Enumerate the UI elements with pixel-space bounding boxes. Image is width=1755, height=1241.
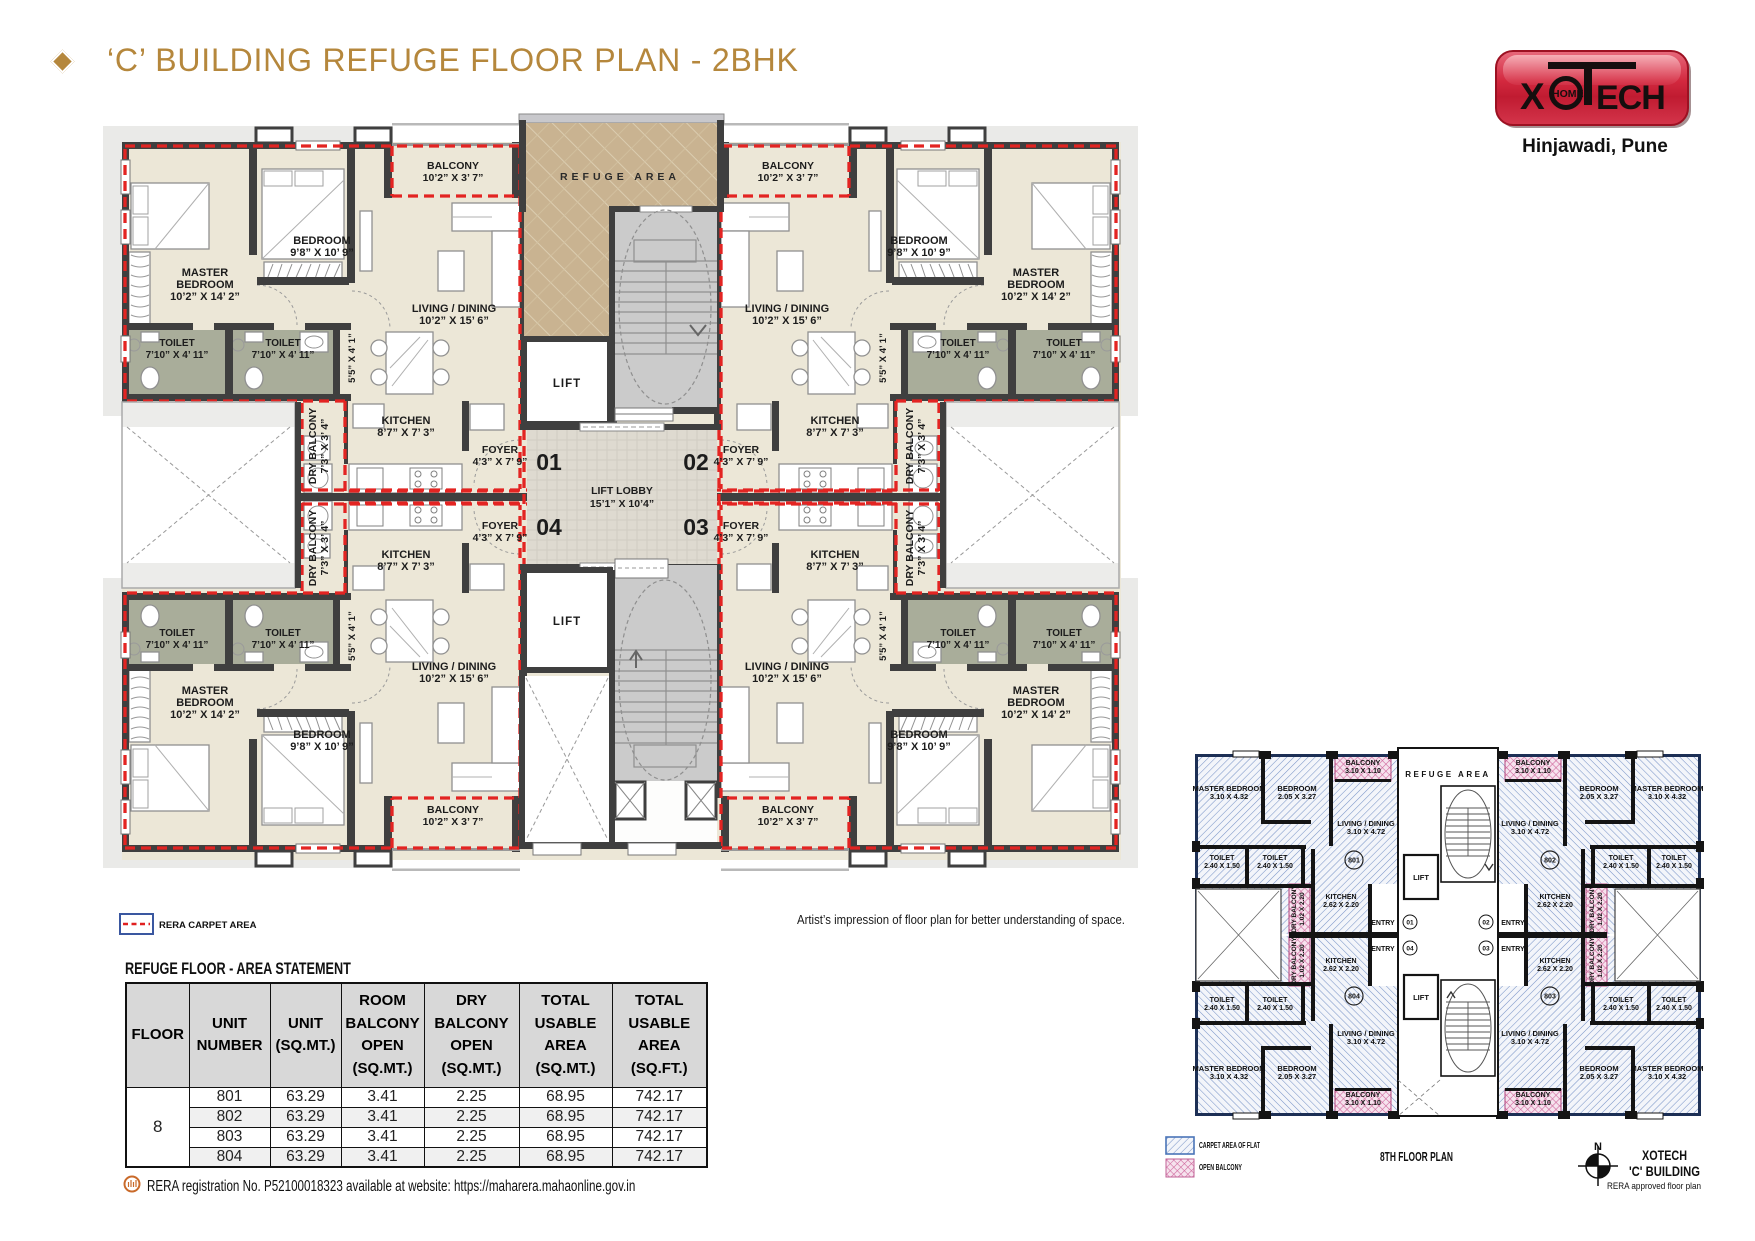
svg-text:ENTRY: ENTRY (1371, 920, 1395, 927)
svg-text:BEDROOM: BEDROOM (293, 235, 350, 247)
svg-text:10’2” X 3’ 7”: 10’2” X 3’ 7” (758, 816, 819, 828)
svg-text:TOILET: TOILET (1046, 628, 1081, 639)
svg-text:BALCONY: BALCONY (1516, 760, 1551, 767)
svg-text:10’2” X 14’ 2”: 10’2” X 14’ 2” (1001, 709, 1071, 721)
svg-text:RERA approved floor plan: RERA approved floor plan (1607, 1181, 1701, 1192)
svg-text:DRY BALCONY: DRY BALCONY (1589, 885, 1596, 933)
svg-text:BEDROOM: BEDROOM (293, 729, 350, 741)
svg-text:FOYER: FOYER (723, 520, 760, 532)
svg-text:LIVING / DINING: LIVING / DINING (745, 303, 829, 315)
svg-text:2.40 X 1.50: 2.40 X 1.50 (1257, 1005, 1293, 1012)
svg-text:02: 02 (1482, 920, 1490, 927)
svg-text:MASTER: MASTER (182, 685, 229, 697)
svg-text:BEDROOM: BEDROOM (1007, 697, 1064, 709)
svg-text:3.10 X 4.32: 3.10 X 4.32 (1648, 1072, 1686, 1081)
svg-text:BALCONY: BALCONY (1346, 760, 1381, 767)
svg-text:TOILET: TOILET (1609, 855, 1634, 862)
svg-text:BALCONY: BALCONY (762, 160, 814, 172)
svg-text:3.10 X 1.10: 3.10 X 1.10 (1515, 768, 1551, 775)
svg-text:2.05 X 3.27: 2.05 X 3.27 (1278, 1072, 1316, 1081)
svg-text:03: 03 (683, 514, 709, 540)
svg-text:MASTER: MASTER (182, 267, 229, 279)
svg-text:15’1” X 10’4”: 15’1” X 10’4” (590, 498, 654, 510)
svg-text:7’3” X 3’ 4”: 7’3” X 3’ 4” (319, 419, 331, 474)
svg-text:LIVING / DINING: LIVING / DINING (745, 661, 829, 673)
svg-text:KITCHEN: KITCHEN (1325, 894, 1356, 901)
svg-text:TOILET: TOILET (1263, 855, 1288, 862)
svg-text:2.62 X 2.20: 2.62 X 2.20 (1537, 966, 1573, 973)
svg-text:TOILET: TOILET (1662, 997, 1687, 1004)
svg-text:3.10 X 4.72: 3.10 X 4.72 (1511, 827, 1549, 836)
svg-text:9’8” X 10’ 9”: 9’8” X 10’ 9” (887, 247, 951, 259)
svg-text:MASTER: MASTER (1013, 685, 1060, 697)
svg-text:FOYER: FOYER (723, 444, 760, 456)
svg-text:4’3” X 7’ 9”: 4’3” X 7’ 9” (473, 456, 528, 468)
svg-text:10’2” X 15’ 6”: 10’2” X 15’ 6” (419, 673, 489, 685)
svg-text:BEDROOM: BEDROOM (176, 279, 233, 291)
svg-text:TOILET: TOILET (1210, 855, 1235, 862)
svg-text:TOILET: TOILET (1263, 997, 1288, 1004)
svg-text:FOYER: FOYER (482, 520, 519, 532)
svg-text:3.10 X 4.32: 3.10 X 4.32 (1210, 792, 1248, 801)
svg-text:7’3” X 3’ 4”: 7’3” X 3’ 4” (916, 521, 928, 576)
svg-text:DRY BALCONY: DRY BALCONY (904, 408, 916, 484)
svg-text:04: 04 (1406, 946, 1414, 953)
svg-text:KITCHEN: KITCHEN (811, 549, 860, 561)
svg-text:5’5” X 4’ 1”: 5’5” X 4’ 1” (347, 611, 358, 661)
svg-text:803: 803 (1544, 994, 1556, 1001)
svg-text:BEDROOM: BEDROOM (176, 697, 233, 709)
svg-text:2.40 X 1.50: 2.40 X 1.50 (1204, 1005, 1240, 1012)
svg-text:9’8” X 10’ 9”: 9’8” X 10’ 9” (290, 741, 354, 753)
svg-text:02: 02 (683, 449, 709, 475)
svg-text:2.05 X 3.27: 2.05 X 3.27 (1278, 792, 1316, 801)
svg-text:7’10” X 4’ 11”: 7’10” X 4’ 11” (1033, 640, 1096, 651)
svg-text:3.10 X 4.72: 3.10 X 4.72 (1347, 1037, 1385, 1046)
svg-text:10’2” X 14’ 2”: 10’2” X 14’ 2” (170, 709, 240, 721)
svg-text:7’10” X 4’ 11”: 7’10” X 4’ 11” (252, 350, 315, 361)
svg-text:LIFT LOBBY: LIFT LOBBY (591, 485, 653, 497)
svg-text:MASTER: MASTER (1013, 267, 1060, 279)
svg-text:2.62 X 2.20: 2.62 X 2.20 (1323, 902, 1359, 909)
svg-text:TOILET: TOILET (940, 338, 975, 349)
svg-text:4’3” X 7’ 9”: 4’3” X 7’ 9” (714, 456, 769, 468)
svg-text:04: 04 (536, 514, 562, 540)
svg-text:DRY BALCONY: DRY BALCONY (1291, 885, 1298, 933)
svg-text:7’10” X 4’ 11”: 7’10” X 4’ 11” (1033, 350, 1096, 361)
svg-text:8TH FLOOR PLAN: 8TH FLOOR PLAN (1380, 1150, 1453, 1164)
svg-text:2.40 X 1.50: 2.40 X 1.50 (1656, 1005, 1692, 1012)
svg-text:10’2” X 15’ 6”: 10’2” X 15’ 6” (419, 315, 489, 327)
svg-text:KITCHEN: KITCHEN (382, 549, 431, 561)
svg-text:5’5” X 4’ 1”: 5’5” X 4’ 1” (347, 333, 358, 383)
svg-text:BALCONY: BALCONY (1346, 1092, 1381, 1099)
svg-text:FOYER: FOYER (482, 444, 519, 456)
svg-text:REFUGE AREA: REFUGE AREA (1405, 770, 1490, 779)
svg-text:LIFT: LIFT (553, 378, 581, 390)
svg-text:2.40 X 1.50: 2.40 X 1.50 (1656, 863, 1692, 870)
svg-text:TOILET: TOILET (1046, 338, 1081, 349)
svg-text:7’10” X 4’ 11”: 7’10” X 4’ 11” (252, 640, 315, 651)
svg-text:7’10” X 4’ 11”: 7’10” X 4’ 11” (927, 640, 990, 651)
svg-text:03: 03 (1482, 946, 1490, 953)
svg-text:2.40 X 1.50: 2.40 X 1.50 (1204, 863, 1240, 870)
svg-text:TOILET: TOILET (265, 628, 300, 639)
svg-text:BALCONY: BALCONY (762, 804, 814, 816)
svg-text:01: 01 (536, 449, 562, 475)
svg-text:TOILET: TOILET (159, 338, 194, 349)
svg-text:7’10” X 4’ 11”: 7’10” X 4’ 11” (927, 350, 990, 361)
svg-text:8’7” X 7’ 3”: 8’7” X 7’ 3” (377, 561, 434, 573)
svg-text:802: 802 (1544, 858, 1556, 865)
svg-text:01: 01 (1406, 920, 1414, 927)
svg-text:BALCONY: BALCONY (427, 804, 479, 816)
svg-text:BEDROOM: BEDROOM (890, 729, 947, 741)
svg-text:3.10 X 4.32: 3.10 X 4.32 (1210, 1072, 1248, 1081)
svg-text:TOILET: TOILET (1609, 997, 1634, 1004)
svg-text:ENTRY: ENTRY (1501, 946, 1525, 953)
svg-text:801: 801 (1348, 858, 1360, 865)
svg-text:9’8” X 10’ 9”: 9’8” X 10’ 9” (290, 247, 354, 259)
svg-text:LIVING / DINING: LIVING / DINING (412, 303, 496, 315)
svg-text:KITCHEN: KITCHEN (1539, 958, 1570, 965)
svg-text:10’2” X 15’ 6”: 10’2” X 15’ 6” (752, 673, 822, 685)
svg-text:TOILET: TOILET (265, 338, 300, 349)
svg-text:3.10 X 4.72: 3.10 X 4.72 (1347, 827, 1385, 836)
svg-text:DRY BALCONY: DRY BALCONY (1589, 937, 1596, 985)
svg-text:DRY BALCONY: DRY BALCONY (307, 408, 319, 484)
svg-text:2.62 X 2.20: 2.62 X 2.20 (1537, 902, 1573, 909)
svg-text:1.02 X 2.20: 1.02 X 2.20 (1299, 944, 1306, 978)
svg-text:8’7” X 7’ 3”: 8’7” X 7’ 3” (806, 561, 863, 573)
svg-text:7’3” X 3’ 4”: 7’3” X 3’ 4” (916, 419, 928, 474)
svg-text:BEDROOM: BEDROOM (890, 235, 947, 247)
svg-text:BEDROOM: BEDROOM (1007, 279, 1064, 291)
svg-text:2.05 X 3.27: 2.05 X 3.27 (1580, 1072, 1618, 1081)
svg-text:2.40 X 1.50: 2.40 X 1.50 (1257, 863, 1293, 870)
svg-text:LIFT: LIFT (1413, 993, 1429, 1002)
svg-text:DRY BALCONY: DRY BALCONY (1291, 937, 1298, 985)
svg-text:7’3” X 3’ 4”: 7’3” X 3’ 4” (319, 521, 331, 576)
svg-text:3.10 X 4.32: 3.10 X 4.32 (1648, 792, 1686, 801)
svg-text:10’2” X 3’ 7”: 10’2” X 3’ 7” (423, 816, 484, 828)
svg-text:DRY BALCONY: DRY BALCONY (904, 510, 916, 586)
svg-text:5’5” X 4’ 1”: 5’5” X 4’ 1” (878, 611, 889, 661)
svg-text:LIFT: LIFT (1413, 873, 1429, 882)
svg-text:2.40 X 1.50: 2.40 X 1.50 (1603, 863, 1639, 870)
svg-text:4’3” X 7’ 9”: 4’3” X 7’ 9” (473, 532, 528, 544)
svg-text:3.10 X 1.10: 3.10 X 1.10 (1345, 768, 1381, 775)
svg-text:DRY BALCONY: DRY BALCONY (307, 510, 319, 586)
svg-text:5’5” X 4’ 1”: 5’5” X 4’ 1” (878, 333, 889, 383)
svg-text:XOTECH: XOTECH (1642, 1147, 1687, 1163)
svg-text:804: 804 (1348, 994, 1360, 1001)
svg-text:10’2” X 3’ 7”: 10’2” X 3’ 7” (758, 172, 819, 184)
svg-text:ENTRY: ENTRY (1501, 920, 1525, 927)
svg-text:N: N (1594, 1141, 1602, 1153)
svg-text:2.05 X 3.27: 2.05 X 3.27 (1580, 792, 1618, 801)
svg-text:4’3” X 7’ 9”: 4’3” X 7’ 9” (714, 532, 769, 544)
svg-text:KITCHEN: KITCHEN (1325, 958, 1356, 965)
svg-text:8’7” X 7’ 3”: 8’7” X 7’ 3” (806, 427, 863, 439)
svg-text:7’10” X 4’ 11”: 7’10” X 4’ 11” (146, 350, 209, 361)
svg-text:7’10” X 4’ 11”: 7’10” X 4’ 11” (146, 640, 209, 651)
svg-text:10’2” X 15’ 6”: 10’2” X 15’ 6” (752, 315, 822, 327)
svg-text:TOILET: TOILET (940, 628, 975, 639)
svg-text:3.10 X 1.10: 3.10 X 1.10 (1345, 1100, 1381, 1107)
svg-text:TOILET: TOILET (1210, 997, 1235, 1004)
svg-text:10’2” X 3’ 7”: 10’2” X 3’ 7” (423, 172, 484, 184)
svg-text:2.40 X 1.50: 2.40 X 1.50 (1603, 1005, 1639, 1012)
svg-text:TOILET: TOILET (159, 628, 194, 639)
svg-text:CARPET AREA OF FLAT: CARPET AREA OF FLAT (1199, 1140, 1260, 1150)
svg-text:LIVING / DINING: LIVING / DINING (412, 661, 496, 673)
svg-text:BALCONY: BALCONY (1516, 1092, 1551, 1099)
svg-text:BALCONY: BALCONY (427, 160, 479, 172)
svg-text:OPEN BALCONY: OPEN BALCONY (1199, 1162, 1242, 1172)
svg-text:9’8” X 10’ 9”: 9’8” X 10’ 9” (887, 741, 951, 753)
svg-text:ENTRY: ENTRY (1371, 946, 1395, 953)
svg-text:TOILET: TOILET (1662, 855, 1687, 862)
svg-text:10’2” X 14’ 2”: 10’2” X 14’ 2” (1001, 291, 1071, 303)
svg-text:KITCHEN: KITCHEN (382, 415, 431, 427)
svg-text:3.10 X 4.72: 3.10 X 4.72 (1511, 1037, 1549, 1046)
svg-text:8’7” X 7’ 3”: 8’7” X 7’ 3” (377, 427, 434, 439)
svg-text:1.02 X 2.20: 1.02 X 2.20 (1597, 892, 1604, 926)
svg-text:LIFT: LIFT (553, 616, 581, 628)
svg-text:3.10 X 1.10: 3.10 X 1.10 (1515, 1100, 1551, 1107)
svg-text:10’2” X 14’ 2”: 10’2” X 14’ 2” (170, 291, 240, 303)
svg-text:REFUGE AREA: REFUGE AREA (560, 171, 680, 183)
svg-text:1.02 X 2.20: 1.02 X 2.20 (1597, 944, 1604, 978)
svg-text:1.02 X 2.20: 1.02 X 2.20 (1299, 892, 1306, 926)
svg-text:KITCHEN: KITCHEN (811, 415, 860, 427)
svg-text:'C' BUILDING: 'C' BUILDING (1629, 1163, 1700, 1179)
svg-text:2.62 X 2.20: 2.62 X 2.20 (1323, 966, 1359, 973)
svg-text:KITCHEN: KITCHEN (1539, 894, 1570, 901)
